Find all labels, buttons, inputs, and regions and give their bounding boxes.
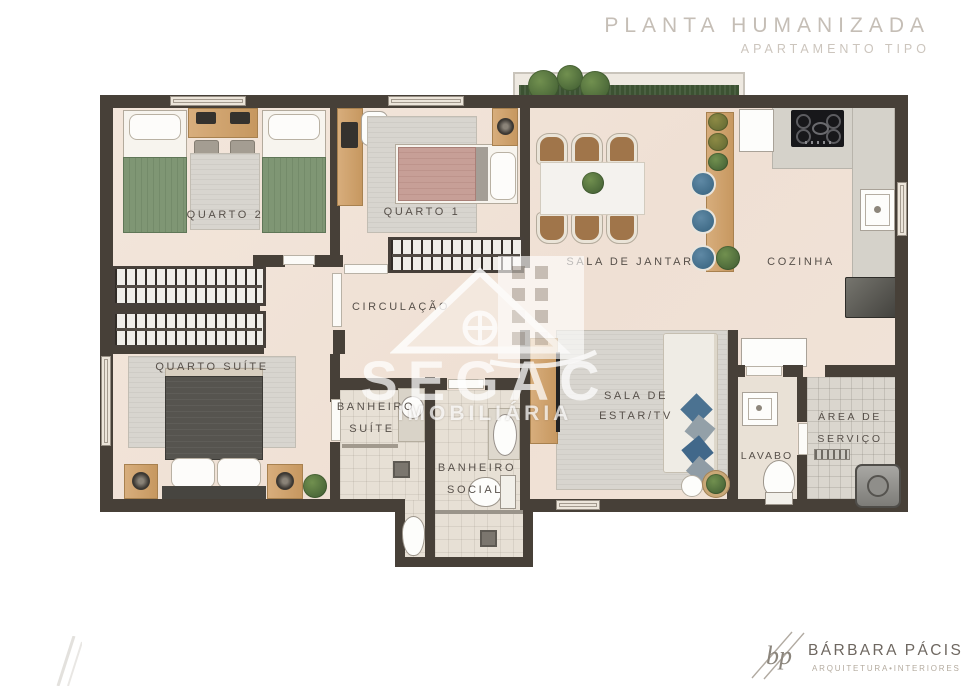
plant — [303, 474, 327, 498]
plant — [716, 246, 740, 270]
bed-pillow — [129, 114, 181, 140]
wall-segment — [797, 455, 807, 511]
window — [101, 356, 111, 446]
laptop — [230, 112, 250, 124]
wall-segment — [330, 442, 340, 500]
bar-stool — [690, 208, 716, 234]
dining-chair — [572, 134, 602, 164]
divider — [435, 510, 523, 514]
wardrobe — [112, 311, 266, 348]
bed-duvet — [398, 147, 476, 201]
toilet — [402, 516, 425, 556]
room-label-banheiro-social-1: BANHEIRO — [438, 462, 516, 474]
dining-chair — [572, 213, 602, 243]
architect-signature: bp BÁRBARA PÁCIS ARQUITETURA•INTERIORES — [740, 628, 955, 680]
door-leaf — [747, 367, 781, 375]
shower-drain — [480, 530, 497, 547]
floor-plan: QUARTO 2 QUARTO 1 SALA DE JANTAR COZINHA… — [0, 0, 974, 686]
dining-chair — [607, 134, 637, 164]
bathroom-sink — [742, 392, 778, 426]
bar-stool — [690, 171, 716, 197]
room-label-quarto-suite: QUARTO SUÍTE — [155, 361, 268, 373]
entry-console — [741, 338, 807, 367]
kitchen-module — [739, 109, 774, 152]
bar-stool — [690, 245, 716, 271]
plant — [708, 153, 728, 171]
window — [556, 500, 600, 510]
bed-duvet — [262, 157, 326, 233]
headboard — [162, 486, 266, 499]
lamp — [497, 118, 514, 135]
laptop — [196, 112, 216, 124]
wall-segment — [100, 499, 400, 512]
clothesline — [814, 449, 850, 460]
side-table — [681, 475, 703, 497]
lamp — [276, 472, 294, 490]
bp-monogram-icon: bp — [748, 628, 806, 680]
dining-chair — [607, 213, 637, 243]
washing-machine — [855, 464, 901, 508]
plant — [708, 133, 728, 151]
room-label-area-servico-2: SERVIÇO — [817, 433, 882, 445]
door-leaf — [799, 424, 807, 454]
dining-chair — [537, 134, 567, 164]
wall-segment — [395, 557, 533, 567]
floor-plan-page: { "header": { "title": "PLANTA HUMANIZAD… — [0, 0, 974, 686]
door-leaf — [284, 256, 314, 264]
window — [388, 96, 464, 106]
room-label-area-servico-1: ÁREA DE — [818, 411, 882, 423]
room-label-lavabo: LAVABO — [741, 450, 793, 462]
wall-segment — [330, 354, 340, 402]
shower-drain — [393, 461, 410, 478]
wardrobe — [112, 266, 266, 306]
divider — [342, 444, 398, 448]
bed-pillow — [217, 458, 261, 488]
wall-segment — [783, 365, 803, 377]
architect-name: BÁRBARA PÁCIS — [808, 642, 963, 660]
watermark-tagline: IMOBILIÁRIA — [340, 402, 630, 426]
room-label-banheiro-social-2: SOCIAL — [447, 484, 503, 496]
wall-segment — [797, 377, 807, 422]
bed-blanket — [476, 147, 488, 201]
kitchen-sink — [860, 189, 895, 231]
bed-duvet — [123, 157, 187, 233]
toilet-tank — [765, 492, 793, 505]
double-bed — [165, 376, 263, 460]
wall-segment — [895, 95, 908, 512]
table-plant — [582, 172, 604, 194]
laptop — [341, 122, 358, 148]
room-label-quarto2: QUARTO 2 — [187, 209, 264, 221]
window — [897, 182, 907, 236]
corner-mark — [52, 636, 82, 686]
plant — [708, 113, 728, 131]
bed-pillow — [171, 458, 215, 488]
fridge — [845, 277, 902, 318]
wall-segment — [313, 255, 343, 267]
bp-monogram-text: bp — [766, 641, 792, 670]
room-label-quarto1: QUARTO 1 — [384, 206, 461, 218]
stove — [791, 110, 844, 147]
dining-chair — [537, 213, 567, 243]
watermark: SEGAC IMOBILIÁRIA — [340, 250, 630, 435]
plant — [706, 474, 726, 494]
window — [170, 96, 246, 106]
bed-pillow — [490, 152, 516, 200]
wall-segment — [825, 365, 896, 377]
bed-pillow — [268, 114, 320, 140]
lamp — [132, 472, 150, 490]
room-label-cozinha: COZINHA — [767, 256, 835, 268]
architect-tagline: ARQUITETURA•INTERIORES — [812, 664, 955, 673]
